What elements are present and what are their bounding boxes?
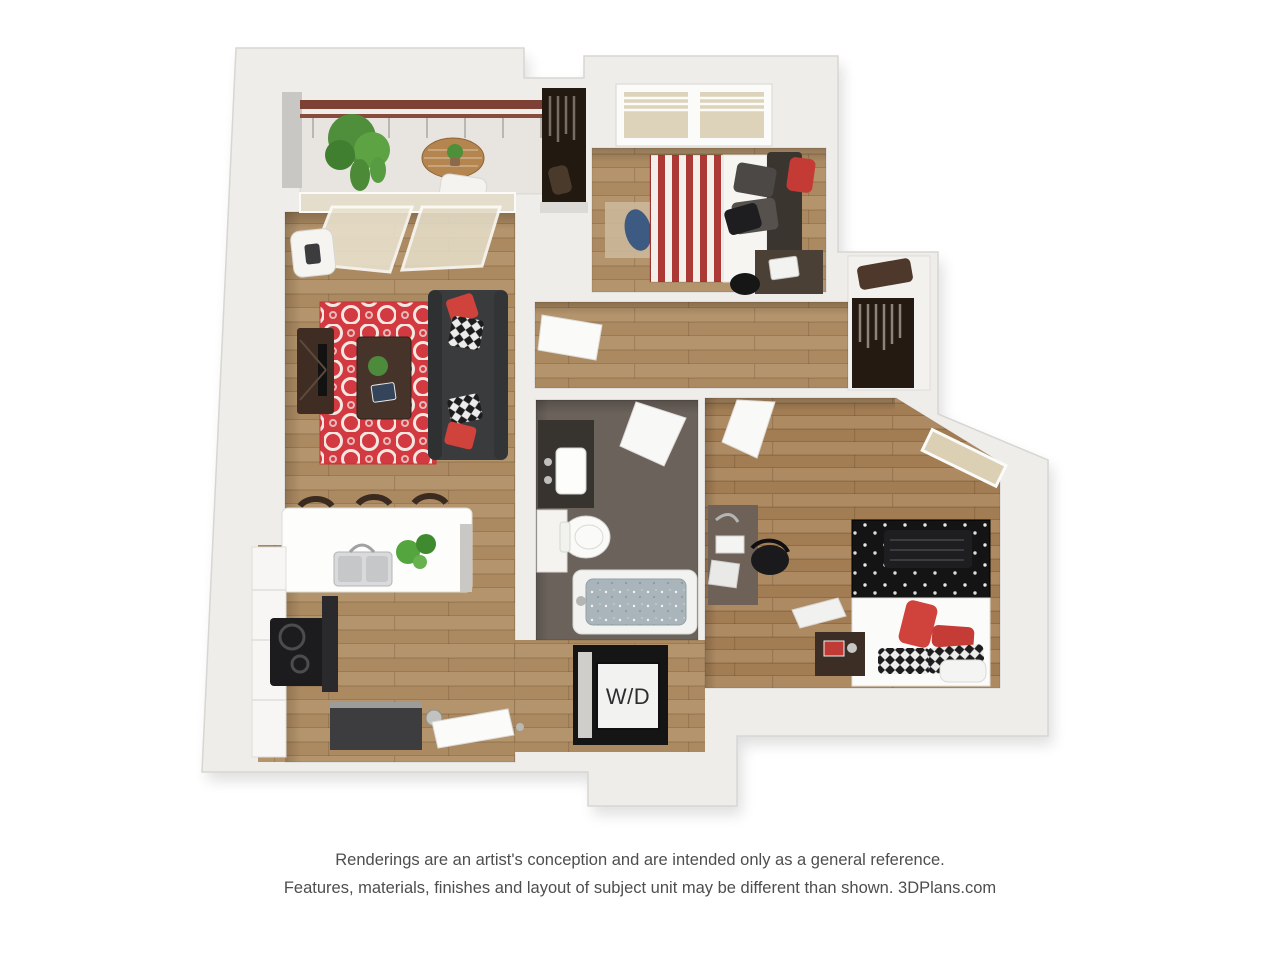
nightstand [815, 632, 865, 676]
armchair [290, 228, 337, 278]
coffee-table [357, 337, 411, 419]
closet1-door [540, 202, 588, 213]
stove-side-panel [322, 596, 338, 692]
balcony-railing [300, 100, 580, 109]
sofa-pillow-bw-top [448, 315, 485, 350]
vanity [538, 420, 594, 508]
page: W/D [0, 0, 1280, 960]
bedroom1-window [616, 84, 772, 146]
tv-console [297, 328, 334, 414]
floorplan-rendering: W/D [0, 0, 1280, 842]
wd-door [578, 652, 592, 738]
floorplan-svg: W/D [0, 0, 1280, 842]
kitchen-peninsula [282, 508, 472, 592]
tub-faucet [576, 596, 586, 606]
bathtub [573, 570, 697, 634]
tablet [371, 382, 396, 402]
disclaimer: Renderings are an artist's conception an… [0, 846, 1280, 902]
bed1-pillow-red [786, 156, 816, 193]
laptop [769, 256, 800, 280]
closet-1 [540, 88, 588, 213]
laundry-closet: W/D [573, 645, 668, 745]
desk2-chair [751, 545, 789, 575]
bed2-pillow-white [940, 660, 986, 682]
vanity-sink [556, 448, 586, 494]
wd-label: W/D [606, 684, 650, 709]
balcony-side-wall [282, 92, 302, 188]
toilet [560, 516, 610, 558]
bathroom [536, 400, 698, 640]
table-plant [368, 356, 388, 376]
desk1-chair [730, 273, 760, 295]
patio-table [422, 138, 484, 178]
sofa [428, 290, 508, 460]
bed-2 [852, 520, 990, 686]
hallway [535, 302, 848, 388]
disclaimer-line-1: Renderings are an artist's conception an… [0, 846, 1280, 874]
walk-in-closet [848, 256, 930, 390]
bed2-pillow-bw1 [878, 648, 930, 674]
bedroom-2 [705, 398, 1006, 688]
disclaimer-line-2: Features, materials, finishes and layout… [0, 874, 1280, 902]
